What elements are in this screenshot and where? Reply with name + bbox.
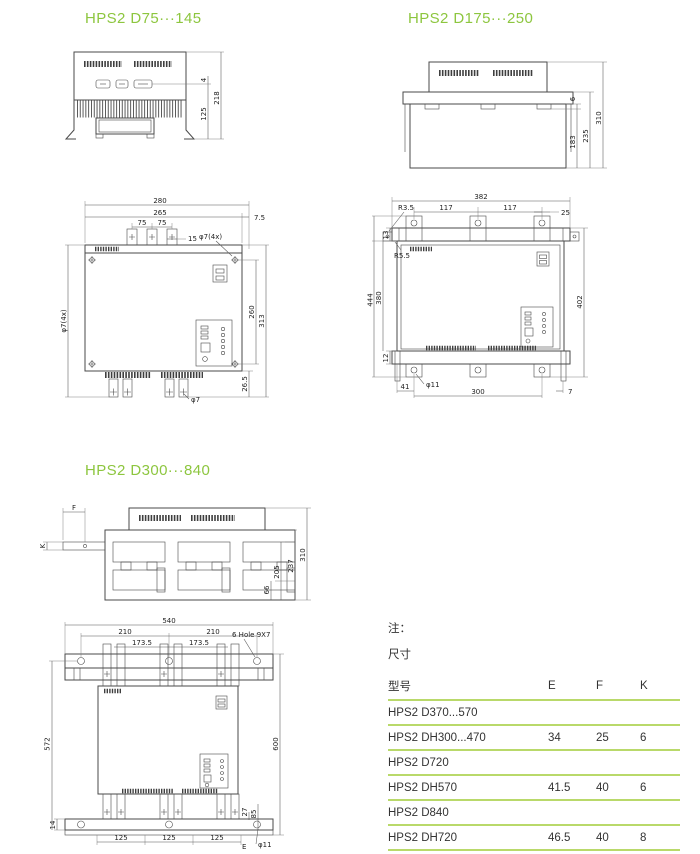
dim-label: 173.5 xyxy=(189,639,209,647)
d175-250-side-view-drawing: 6 183 235 310 xyxy=(383,52,618,180)
dim-label: 66 xyxy=(263,585,271,594)
dim-label: 210 xyxy=(206,628,219,636)
dim-label: 237 xyxy=(287,559,295,572)
model-cell: HPS2 D370...570 xyxy=(388,700,548,725)
k-cell xyxy=(640,700,680,725)
dimension-table: 型号 E F K HPS2 D370...570 HPS2 DH300...47… xyxy=(388,672,680,851)
keypad xyxy=(200,754,228,788)
dim-label: 444 xyxy=(367,293,375,307)
d175-side-dimensions: 6 183 235 310 xyxy=(547,62,607,168)
d300-side-body xyxy=(63,508,295,600)
dim-label: 75 xyxy=(158,219,167,227)
d75-side-body xyxy=(66,52,194,139)
direction-icon xyxy=(537,252,549,266)
model-cell: HPS2 DH720 xyxy=(388,825,548,850)
d75-side-dimensions: 4 125 218 xyxy=(152,52,224,139)
d175-front-body xyxy=(383,216,579,381)
dim-label: 41 xyxy=(401,383,410,391)
f-cell: 40 xyxy=(596,775,640,800)
col-header-k: K xyxy=(640,672,680,700)
table-header-row: 型号 E F K xyxy=(388,672,680,700)
dim-label: 300 xyxy=(471,388,484,396)
d300-840-side-view-drawing: F K 66 205 237 310 xyxy=(33,498,315,616)
dim-label: 125 xyxy=(162,834,175,842)
radius-callout: R5.5 xyxy=(394,252,410,260)
k-cell: 6 xyxy=(640,725,680,750)
direction-icon xyxy=(216,696,227,709)
dim-label: 26.5 xyxy=(241,376,249,392)
dim-label: φ7(4x) xyxy=(60,309,68,332)
keypad xyxy=(521,307,553,347)
dim-label: 6 xyxy=(569,96,577,101)
dim-label: 310 xyxy=(595,111,603,124)
dim-label: 125 xyxy=(114,834,127,842)
dim-label: 125 xyxy=(210,834,223,842)
e-cell: 46.5 xyxy=(548,825,596,850)
e-cell xyxy=(548,700,596,725)
dim-label: 15 xyxy=(188,235,197,243)
hole-callout: φ11 xyxy=(258,841,272,849)
section-title-d300-840: HPS2 D300···840 xyxy=(85,462,210,479)
dim-label: 173.5 xyxy=(132,639,152,647)
hole-callout: φ7(4x) xyxy=(199,233,222,241)
dim-label: 12 xyxy=(382,354,390,363)
model-cell: HPS2 D840 xyxy=(388,800,548,825)
dim-label: 117 xyxy=(503,204,516,212)
dim-label: 183 xyxy=(569,135,577,148)
f-cell xyxy=(596,800,640,825)
table-row: HPS2 DH300...470 34 25 6 xyxy=(388,725,680,750)
dim-label: 13 xyxy=(382,231,390,240)
f-cell: 25 xyxy=(596,725,640,750)
model-cell: HPS2 DH300...470 xyxy=(388,725,548,750)
d300-front-body xyxy=(65,644,273,835)
radius-callout: R3.5 xyxy=(398,204,414,212)
direction-icon xyxy=(213,265,227,282)
e-cell: 34 xyxy=(548,725,596,750)
busbar xyxy=(63,542,105,550)
model-cell: HPS2 D720 xyxy=(388,750,548,775)
dim-label: E xyxy=(242,843,246,851)
dim-label: 402 xyxy=(576,295,584,308)
dim-label: 265 xyxy=(153,209,166,217)
d300-840-front-view-drawing: 540 210 210 173.5 173.5 6 Hole 9X7 14 57… xyxy=(46,616,288,852)
dim-label: 260 xyxy=(248,305,256,318)
d75-front-body xyxy=(85,229,242,397)
d75-145-front-view-drawing: 280 265 7.5 75 75 15 φ7(4x) φ7(4x) xyxy=(55,193,270,431)
hole-callout: φ11 xyxy=(426,381,440,389)
col-header-e: E xyxy=(548,672,596,700)
dim-label: 572 xyxy=(44,737,52,750)
e-cell xyxy=(548,800,596,825)
table-row: HPS2 D370...570 xyxy=(388,700,680,725)
pole-stack xyxy=(178,542,230,592)
dim-label: 25 xyxy=(561,209,570,217)
catalog-page: HPS2 D75···145 HPS2 D175···250 HPS2 D300… xyxy=(0,0,700,854)
e-cell xyxy=(548,750,596,775)
dim-label: 600 xyxy=(272,737,280,750)
size-label: 尺寸 xyxy=(388,646,680,662)
dim-label: 4 xyxy=(200,77,208,82)
table-row: HPS2 DH720 46.5 40 8 xyxy=(388,825,680,850)
note-label: 注： xyxy=(388,620,680,636)
model-cell: HPS2 DH570 xyxy=(388,775,548,800)
keypad xyxy=(196,320,232,366)
dim-label: F xyxy=(72,504,76,512)
dim-label: 280 xyxy=(153,197,166,205)
table-row: HPS2 D720 xyxy=(388,750,680,775)
hole-callout: 6 Hole 9X7 xyxy=(232,631,270,639)
dim-label: 218 xyxy=(213,91,221,104)
dim-label: 382 xyxy=(474,193,487,201)
col-header-f: F xyxy=(596,672,640,700)
dim-label: 85 xyxy=(250,810,258,819)
table-row: HPS2 D840 xyxy=(388,800,680,825)
section-title-d175-250: HPS2 D175···250 xyxy=(408,10,533,27)
fan-housing xyxy=(96,118,154,134)
dim-label: 7.5 xyxy=(254,214,265,222)
dim-label: 210 xyxy=(118,628,131,636)
dim-label: 75 xyxy=(138,219,147,227)
section-title-d75-145: HPS2 D75···145 xyxy=(85,10,201,27)
col-header-model: 型号 xyxy=(388,672,548,700)
dim-label: 380 xyxy=(375,291,383,304)
d175-side-body xyxy=(403,62,573,168)
f-cell xyxy=(596,750,640,775)
k-cell: 6 xyxy=(640,775,680,800)
dim-label: 310 xyxy=(299,548,307,561)
f-cell xyxy=(596,700,640,725)
dim-label: 7 xyxy=(568,388,572,396)
hole-callout: φ7 xyxy=(191,396,200,404)
d300-front-dimensions: 540 210 210 173.5 173.5 6 Hole 9X7 14 57… xyxy=(44,617,285,851)
dimension-table-section: 注： 尺寸 型号 E F K HPS2 D370...570 HPS2 DH30… xyxy=(388,620,680,851)
k-cell xyxy=(640,750,680,775)
pole-stack xyxy=(113,542,165,592)
dim-label: 205 xyxy=(273,565,281,578)
dim-label: 125 xyxy=(200,107,208,120)
table-row: HPS2 DH570 41.5 40 6 xyxy=(388,775,680,800)
d175-250-front-view-drawing: 382 117 117 25 R3.5 R5.5 xyxy=(368,190,596,412)
k-cell: 8 xyxy=(640,825,680,850)
dim-label: 14 xyxy=(49,820,57,829)
e-cell: 41.5 xyxy=(548,775,596,800)
dim-label: 235 xyxy=(582,129,590,142)
dim-label: 27 xyxy=(241,808,249,817)
dim-label: 313 xyxy=(258,314,266,327)
dim-label: K xyxy=(39,543,47,548)
f-cell: 40 xyxy=(596,825,640,850)
dim-label: 540 xyxy=(162,617,175,625)
dim-label: 117 xyxy=(439,204,452,212)
k-cell xyxy=(640,800,680,825)
d75-145-side-view-drawing: 4 125 218 xyxy=(60,38,230,160)
